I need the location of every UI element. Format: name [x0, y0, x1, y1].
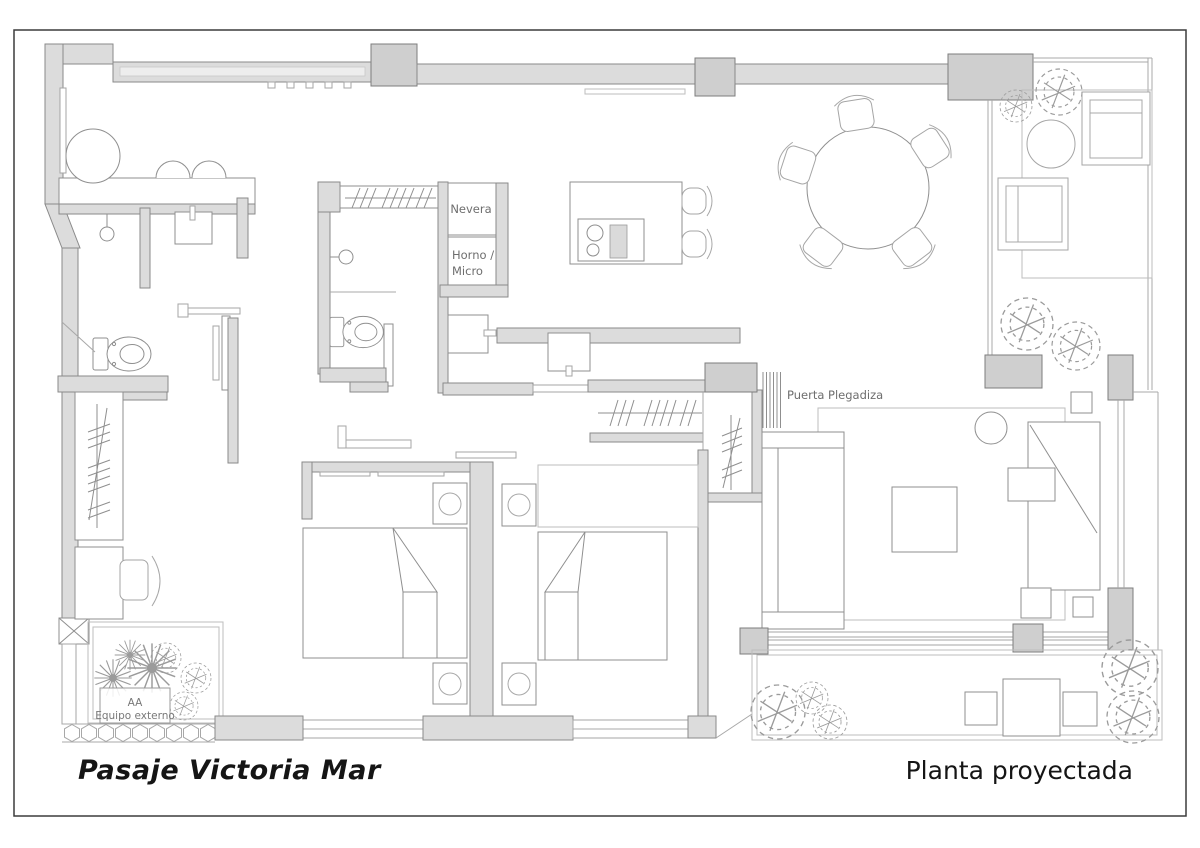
ac-label-line1: AA: [128, 697, 143, 709]
fridge: Nevera: [448, 183, 496, 235]
nightstand: [433, 663, 467, 704]
plant-icon: [115, 640, 146, 671]
toilet-icon: [93, 337, 151, 371]
pendant-light-icon: [100, 227, 114, 241]
sliding-door: [533, 385, 588, 392]
bedroom-divider-wall: [470, 462, 493, 722]
oven-label-line2: Micro: [452, 264, 483, 278]
coffee-table: [892, 487, 957, 552]
hall-washbasin: [548, 333, 590, 376]
plan-sheet: Nevera Horno / Micro: [0, 0, 1200, 848]
round-basin: [66, 129, 120, 183]
side-table: [975, 412, 1007, 444]
wardrobe: [75, 392, 123, 540]
balcony-armchair-right: [1082, 92, 1150, 165]
balcony-round-table: [1027, 120, 1075, 168]
bed-2: [538, 532, 667, 660]
ac-unit: AA Equipo externo: [95, 688, 175, 723]
oven-label-line1: Horno /: [452, 248, 494, 262]
balcony-armchair-left: [998, 178, 1068, 250]
ac-label-line2: Equipo externo: [95, 710, 175, 722]
wall-sink: [175, 206, 212, 244]
closet-rail: [340, 186, 440, 208]
oven-micro: Horno / Micro: [448, 237, 496, 285]
sofa: [762, 432, 844, 629]
nightstand: [433, 483, 467, 524]
fridge-label: Nevera: [450, 202, 491, 216]
sheet-title: Pasaje Victoria Mar: [78, 755, 382, 786]
nightstand: [502, 663, 536, 705]
hall-wall: [228, 318, 238, 463]
toilet-icon: [330, 316, 383, 347]
sheet-subtitle: Planta proyectada: [906, 756, 1133, 785]
nightstand: [502, 484, 536, 526]
pendant-light-icon: [339, 250, 353, 264]
floor-plan-drawing: Nevera Horno / Micro: [0, 0, 1200, 848]
folding-door-label: Puerta Plegadiza: [787, 388, 883, 402]
bed-1: [303, 528, 467, 658]
shaft-box: [59, 618, 89, 644]
